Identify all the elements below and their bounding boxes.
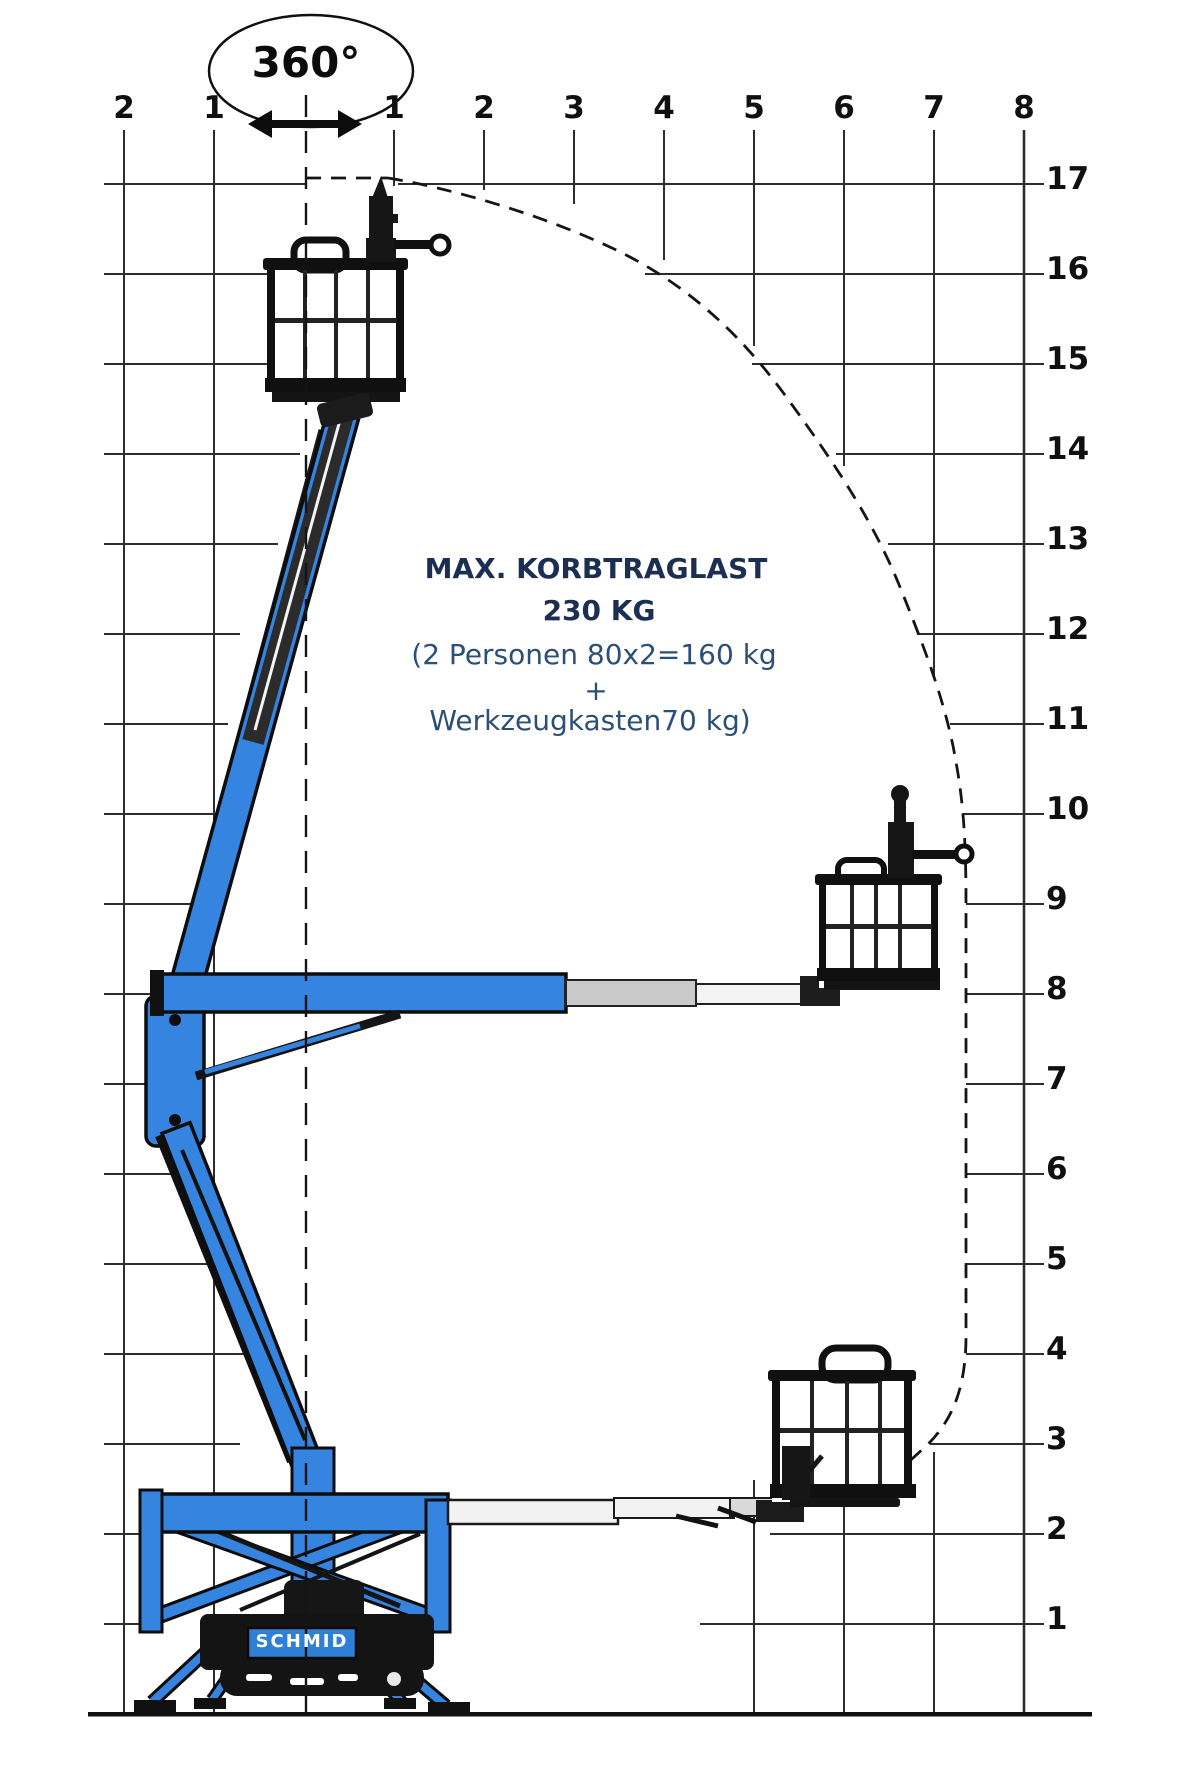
y-axis-label: 14 [1046, 434, 1089, 465]
x-axis-label: 2 [473, 93, 495, 124]
max-load-value: 230 KG [543, 594, 656, 627]
base-chassis [134, 1490, 470, 1714]
x-axis-label: 7 [923, 93, 945, 124]
x-axis-label: 5 [743, 93, 765, 124]
load-detail-line: Werkzeugkasten70 kg) [429, 704, 750, 737]
x-axis-label: 3 [563, 93, 585, 124]
low-position-boom [448, 1462, 804, 1526]
y-axis-label: 3 [1046, 1424, 1068, 1455]
basket-low-position [768, 1348, 916, 1507]
y-axis-label: 16 [1046, 254, 1089, 285]
basket-top-position [263, 176, 449, 428]
basket-mid-position [815, 785, 972, 990]
mid-position-boom [150, 970, 840, 1076]
x-axis-label: 2 [113, 93, 135, 124]
load-detail-plus: + [584, 674, 607, 707]
y-axis-label: 9 [1046, 884, 1068, 915]
y-axis-label: 12 [1046, 614, 1089, 645]
y-axis-label: 15 [1046, 344, 1089, 375]
y-axis-label: 5 [1046, 1244, 1068, 1275]
x-axis-label: 1 [203, 93, 225, 124]
x-axis-label: 6 [833, 93, 855, 124]
y-axis-label: 6 [1046, 1154, 1068, 1185]
max-load-title: MAX. KORBTRAGLAST [425, 552, 768, 585]
brand-label: SCHMID [248, 1631, 356, 1652]
rotation-angle-label: 360° [252, 38, 361, 87]
y-axis-label: 10 [1046, 794, 1089, 825]
ground-line [88, 1712, 1092, 1717]
y-axis-label: 1 [1046, 1604, 1068, 1635]
y-axis-label: 7 [1046, 1064, 1068, 1095]
diagram-drawing [0, 0, 1200, 1767]
x-axis-label: 1 [383, 93, 405, 124]
y-axis-label: 8 [1046, 974, 1068, 1005]
x-axis-label: 8 [1013, 93, 1035, 124]
working-envelope-curve [306, 178, 966, 1492]
working-range-diagram: 360° 2 1 1 2 3 4 5 6 7 8 17 16 15 14 13 … [0, 0, 1200, 1767]
y-axis-label: 13 [1046, 524, 1089, 555]
y-axis-label: 4 [1046, 1334, 1068, 1365]
y-axis-ticks [1024, 184, 1044, 1624]
y-axis-label: 17 [1046, 164, 1089, 195]
y-axis-label: 2 [1046, 1514, 1068, 1545]
x-axis-label: 4 [653, 93, 675, 124]
load-detail-line: (2 Personen 80x2=160 kg [411, 638, 776, 671]
y-axis-label: 11 [1046, 704, 1089, 735]
